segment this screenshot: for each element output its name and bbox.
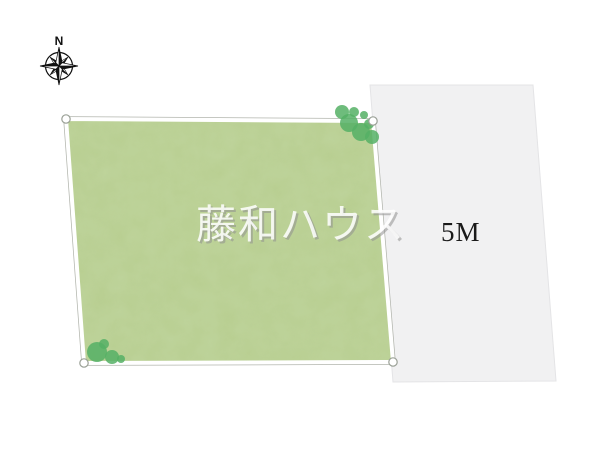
plot-corner-marker [80, 359, 88, 367]
road-width-label: 5M [441, 217, 481, 247]
site-plan-drawing: 藤和ハウス 藤和ハウス 5M [0, 0, 600, 450]
plot-corner-marker [369, 117, 377, 125]
watermark-logo: 藤和ハウス [196, 202, 406, 248]
plot-corner-marker [62, 115, 70, 123]
plot-corner-marker [389, 358, 397, 366]
compass-rose-icon: N [40, 34, 78, 85]
compass-north-label: N [55, 34, 64, 48]
site-plan: 藤和ハウス 藤和ハウス 5M [0, 0, 600, 450]
